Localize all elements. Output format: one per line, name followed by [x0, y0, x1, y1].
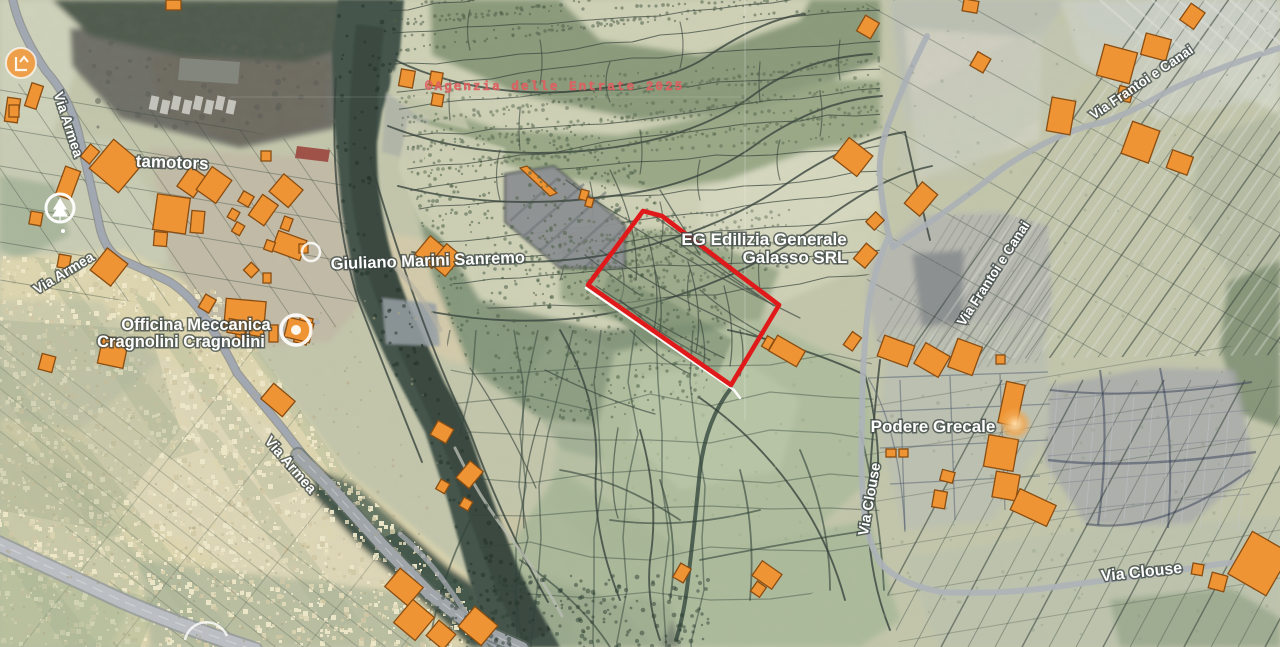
svg-text:©Agenzia delle Entrate 2025: ©Agenzia delle Entrate 2025	[425, 80, 684, 94]
svg-text:Galasso SRL: Galasso SRL	[743, 248, 848, 267]
svg-text:EG Edilizia Generale: EG Edilizia Generale	[681, 230, 846, 249]
svg-text:Officina Meccanica: Officina Meccanica	[121, 316, 271, 334]
svg-text:tamotors: tamotors	[136, 152, 209, 174]
svg-text:Cragnolini Cragnolini: Cragnolini Cragnolini	[97, 333, 265, 351]
svg-text:Podere Grecale: Podere Grecale	[871, 417, 996, 436]
